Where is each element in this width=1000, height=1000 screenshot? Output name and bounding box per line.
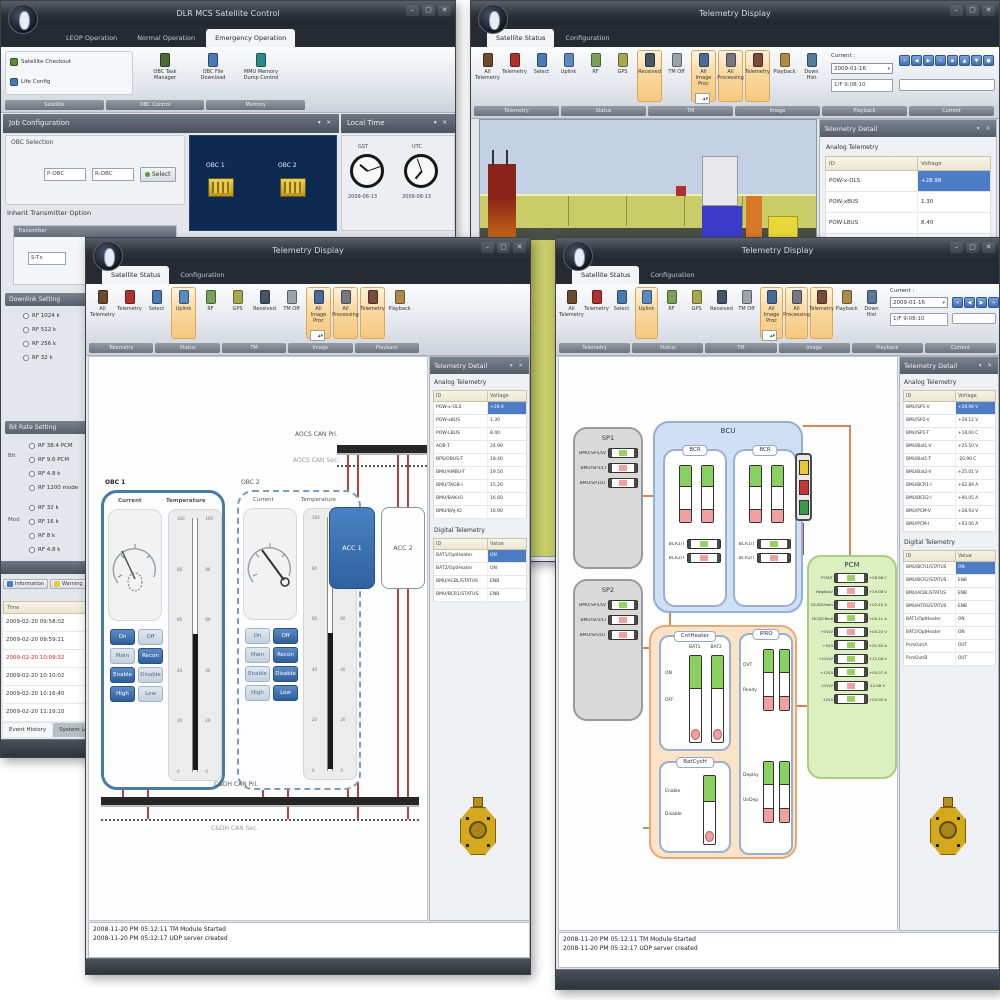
- table-row[interactable]: BMU/TAGB-I 15.20: [433, 480, 527, 493]
- battery-meter: [771, 465, 784, 523]
- log-line: 2008-11-20 PM 05:12:11 TM Module Started: [93, 925, 525, 934]
- status-bar: [86, 958, 530, 974]
- satellite-icon: [456, 795, 500, 859]
- acc2-box[interactable]: ACC 2: [381, 507, 425, 589]
- column-header-id[interactable]: ID: [904, 391, 956, 401]
- pcm-channel-indicator: PCM/T +28.98 C: [811, 573, 893, 583]
- tm-spinner[interactable]: ▴▾: [762, 330, 777, 341]
- cdh-pri-bus: [101, 797, 419, 805]
- ribbon-tab[interactable]: LEOP Operation: [57, 29, 126, 47]
- radio-option[interactable]: RF 16 k: [29, 515, 60, 529]
- titlebar[interactable]: Telemetry Display: [471, 1, 999, 25]
- tool-icon: [726, 53, 736, 67]
- log-box: 2008-11-20 PM 05:12:11 TM Module Started…: [88, 922, 530, 958]
- sp1-title: SP1: [575, 434, 641, 442]
- local-time-header[interactable]: Local Time ▾ ✕: [341, 114, 455, 133]
- scale-tick-label: 100: [312, 515, 320, 520]
- scale-tick-label: 20: [205, 718, 213, 723]
- window-controls: – ▢ ✕: [406, 5, 451, 16]
- cdh-pri-label: C&DH CAN Pri.: [214, 781, 258, 788]
- antenna-icon: [492, 150, 494, 166]
- column-header-voltage[interactable]: Voltage: [956, 391, 995, 401]
- pcm-title: PCM: [809, 561, 895, 569]
- tool-icon: [692, 290, 702, 304]
- obc-command-button[interactable]: On: [245, 628, 270, 644]
- table-row[interactable]: POW-LBUS 8.40: [433, 428, 527, 441]
- telemetry-indicator: BCR2/T: [737, 553, 795, 563]
- playback-nav-button[interactable]: ●: [983, 55, 994, 66]
- ribbon-button[interactable]: Telemetry: [810, 287, 833, 339]
- panel-header-icons[interactable]: ▾ ✕: [510, 363, 525, 369]
- panel-header-icons[interactable]: ▾ ✕: [979, 363, 994, 369]
- tool-icon: [645, 53, 655, 67]
- current-time-field[interactable]: 1/F 9:08:10: [831, 79, 893, 92]
- ribbon-button[interactable]: Playback: [387, 287, 412, 339]
- clock-gst: [350, 154, 384, 188]
- ribbon-button[interactable]: Uplink: [171, 287, 196, 339]
- table-row[interactable]: BAT2/OptHeater ON: [903, 627, 996, 640]
- ribbon-button[interactable]: RF: [583, 50, 608, 102]
- bcr2-title: BCR: [752, 445, 777, 456]
- chevron-down-icon: ▾: [942, 300, 945, 306]
- obc2-label: OBC 2: [278, 162, 297, 169]
- ribbon-side-button[interactable]: Satellite Checkout: [6, 52, 132, 72]
- ribbon-group-label: Current: [925, 343, 996, 353]
- ribbon-group-label: Status: [632, 343, 703, 353]
- ribbon-tab[interactable]: Normal Operation: [128, 29, 204, 47]
- table-row[interactable]: BMU/BCR2-I +00.05 A: [903, 493, 996, 506]
- ribbon-group-label: TM: [648, 106, 733, 116]
- ribbon-button[interactable]: Telemetry: [360, 287, 385, 339]
- ribbon-group-label: Image: [288, 343, 352, 353]
- column-header-id[interactable]: ID: [434, 391, 488, 401]
- traffic-light-icon: [795, 453, 812, 521]
- ribbon-group-label: OBC Control: [106, 100, 205, 110]
- playback-nav-button[interactable]: «: [952, 297, 963, 308]
- bcr1-box: BCR BCR1/T BCR2/T: [663, 449, 727, 607]
- ribbon-button[interactable]: Received: [637, 50, 662, 102]
- state-label: Ready: [743, 688, 757, 693]
- lander-body: [488, 164, 516, 240]
- ribbon-button[interactable]: All Telemetry: [90, 287, 115, 339]
- battery-meter: [701, 465, 714, 523]
- table-row[interactable]: POW-x-OLS +28.9: [433, 402, 527, 415]
- ribbon-button[interactable]: All Processing: [785, 287, 808, 339]
- minimize-button[interactable]: –: [481, 242, 494, 253]
- tool-icon: [483, 53, 493, 67]
- titlebar[interactable]: Telemetry Display: [556, 238, 999, 262]
- select-button[interactable]: Select: [140, 167, 176, 182]
- radio-option[interactable]: RF 32 k: [23, 351, 60, 365]
- ribbon-button[interactable]: RF: [198, 287, 223, 339]
- minimize-button[interactable]: –: [406, 5, 419, 16]
- radio-option[interactable]: RF 256 k: [23, 337, 60, 351]
- panel-collapse-icon[interactable]: ▾ ✕: [434, 114, 449, 133]
- playback-nav-button[interactable]: ▼: [971, 55, 982, 66]
- column-header-voltage[interactable]: Voltage: [918, 157, 990, 170]
- playback-nav-button[interactable]: ▶: [976, 297, 987, 308]
- close-button[interactable]: ✕: [438, 5, 451, 16]
- column-header-value[interactable]: Value: [488, 539, 526, 549]
- obc-command-button[interactable]: Off: [138, 629, 163, 645]
- ribbon-side-button[interactable]: Life Config: [6, 72, 132, 92]
- app-icon: [93, 241, 123, 271]
- ribbon-tab[interactable]: Configuration: [171, 266, 233, 284]
- scale-tick-label: 20: [312, 717, 320, 722]
- ribbon-group-label: Memory: [206, 100, 305, 110]
- ribbon-button[interactable]: GPS: [685, 287, 708, 339]
- pcm-channel-value: +29.08 V: [869, 589, 893, 594]
- column-header-id[interactable]: ID: [904, 551, 956, 561]
- batcych-title: BatCycH: [676, 757, 714, 768]
- radio-icon: [23, 355, 29, 361]
- table-row[interactable]: BMU/BAJ-IO 16.90: [433, 506, 527, 519]
- obc-command-button[interactable]: Recon: [138, 648, 163, 664]
- table-row[interactable]: BAT2/OptHeater ON: [433, 563, 527, 576]
- bus-box: [702, 206, 742, 240]
- maximize-button[interactable]: ▢: [966, 242, 979, 253]
- sp2-title: SP2: [575, 586, 641, 594]
- radio-option[interactable]: RF 4.8 k: [29, 467, 78, 481]
- table-row[interactable]: POW-xBUS 1.30: [825, 192, 991, 213]
- ribbon-button[interactable]: Received: [252, 287, 277, 339]
- telemetry-indicator: BMU/SP2/LV: [578, 600, 638, 610]
- column-header-value[interactable]: Value: [956, 551, 995, 561]
- table-row[interactable]: BMU/ACBL/STATUS ENB: [903, 588, 996, 601]
- ribbon-big-button[interactable]: OBC Task Manager: [142, 50, 188, 98]
- tool-icon: [160, 53, 170, 67]
- panel-header[interactable]: Telemetry Detail ▾ ✕: [900, 357, 998, 374]
- tool-icon: [753, 53, 763, 67]
- telemetry-indicator: BCR2/T: [667, 553, 725, 563]
- aocs-sec-bus: [337, 465, 427, 467]
- pcm-channel-indicator: DC/DCMainI +02.45 A: [811, 600, 893, 610]
- ribbon-button[interactable]: Select: [529, 50, 554, 102]
- ribbon-button[interactable]: Uplink: [635, 287, 658, 339]
- obc-command-button[interactable]: Recon: [273, 647, 298, 663]
- current-label: Current :: [831, 53, 855, 59]
- table-row[interactable]: BMU/PCM-V +28.93 V: [903, 506, 996, 519]
- mod-side-label: Mod: [8, 517, 20, 523]
- spinner-arrows-icon[interactable]: ▴▾: [770, 333, 775, 339]
- ribbon-button[interactable]: All Telemetry: [475, 50, 500, 102]
- temperature-gauge: 100806040200 100806040200: [168, 509, 222, 781]
- transmitter-legend: Inherit Transmitter Option: [7, 209, 91, 217]
- column-header-voltage[interactable]: Voltage: [488, 391, 526, 401]
- radio-option[interactable]: RF 9.6 PCM: [29, 453, 78, 467]
- ribbon-tab[interactable]: Configuration: [641, 266, 703, 284]
- bcr1-title: BCR: [682, 445, 707, 456]
- playback-nav-button[interactable]: »: [935, 55, 946, 66]
- tool-icon: [125, 290, 135, 304]
- playback-progress[interactable]: [899, 79, 995, 91]
- ribbon-tab[interactable]: Configuration: [556, 29, 618, 47]
- playback-nav-button[interactable]: ▶: [923, 55, 934, 66]
- playback-nav-button[interactable]: ▲: [959, 55, 970, 66]
- ribbon-group-label: Status: [155, 343, 219, 353]
- window-title: Telemetry Display: [272, 246, 344, 255]
- obc-command-button[interactable]: Off: [273, 628, 298, 644]
- pcm-box: PCM PCM/T +28.98 C RegBusV +29.08 V DC/D…: [807, 555, 897, 779]
- table-row[interactable]: BMU/ACBL/STATUS ENB: [433, 576, 527, 589]
- obc-command-button[interactable]: Disable: [138, 667, 163, 683]
- ribbon-big-button[interactable]: OBC File Download: [190, 50, 236, 98]
- ribbon-group-label: Image: [779, 343, 850, 353]
- radio-icon: [29, 471, 35, 477]
- ribbon-button[interactable]: All Processing: [333, 287, 358, 339]
- maximize-button[interactable]: ▢: [966, 5, 979, 16]
- radio-icon: [29, 485, 35, 491]
- scale-tick-label: 40: [340, 667, 348, 672]
- ribbon-button[interactable]: TM Off: [664, 50, 689, 102]
- ribbon-button[interactable]: Uplink: [556, 50, 581, 102]
- obc-command-button[interactable]: Main: [245, 647, 270, 663]
- clock1-caption: GST: [358, 144, 368, 150]
- window-title: Telemetry Display: [742, 246, 814, 255]
- panel-header-icons[interactable]: ▾ ✕: [977, 126, 992, 132]
- minimize-button[interactable]: –: [950, 5, 963, 16]
- ribbon-group-label: Playback: [822, 106, 907, 116]
- scale-tick-label: 40: [177, 668, 185, 673]
- maximize-button[interactable]: ▢: [497, 242, 510, 253]
- spinner-arrows-icon[interactable]: ▴▾: [703, 96, 708, 102]
- ribbon-group-label: Current: [909, 106, 994, 116]
- playback-nav-button[interactable]: «: [899, 55, 910, 66]
- obc-command-button[interactable]: Disable: [273, 666, 298, 682]
- log-line: 2008-11-20 PM 05:12:11 TM Module Started: [563, 935, 994, 944]
- window-controls: – ▢ ✕: [950, 242, 995, 253]
- ribbon-button[interactable]: TM Off: [279, 287, 304, 339]
- table-row[interactable]: POW-x-OLS +28.98: [825, 171, 991, 192]
- obc2-field[interactable]: R-OBC: [92, 168, 134, 181]
- analog-telemetry-title: Analog Telemetry: [826, 144, 878, 151]
- ribbon-group-label: TM: [222, 343, 286, 353]
- radio-icon: [23, 327, 29, 333]
- radio-icon: [29, 505, 35, 511]
- app-icon: [478, 4, 508, 34]
- table-row[interactable]: BMU/Bat1-V +25.50 V: [903, 441, 996, 454]
- pane-tab[interactable]: Event History: [3, 723, 52, 737]
- table-row[interactable]: BMU/HTRS/STATUS ENB: [903, 601, 996, 614]
- job-config-header[interactable]: Job Configuration ▾ ✕: [3, 114, 339, 133]
- pcm-channel-indicator: -12V/I +00.05 A: [811, 694, 893, 704]
- ribbon-button[interactable]: GPS: [610, 50, 635, 102]
- column-header-id[interactable]: ID: [826, 157, 918, 170]
- tm-spinner[interactable]: ▴▾: [310, 330, 325, 341]
- current-label: Current: [118, 498, 142, 504]
- ribbon-button[interactable]: Telemetry: [117, 287, 142, 339]
- current-gauge: [243, 508, 297, 620]
- cntheater-title: CntHeater: [674, 631, 716, 642]
- playback-nav-button[interactable]: ▪: [947, 55, 958, 66]
- ribbon-button[interactable]: Telemetry: [585, 287, 608, 339]
- ribbon-tab[interactable]: Emergency Operation: [206, 29, 295, 47]
- telemetry-indicator: BMU/SP2/LI: [578, 615, 638, 625]
- playback-nav-button[interactable]: »: [988, 297, 999, 308]
- obc-command-button[interactable]: Main: [110, 648, 135, 664]
- obc-command-button[interactable]: On: [110, 629, 135, 645]
- radio-option[interactable]: RF 1024 k: [23, 309, 60, 323]
- bcu-box: BCU BCR BCR1/T BCR2/T BC: [653, 421, 803, 613]
- panel-collapse-icon[interactable]: ▾ ✕: [318, 114, 333, 133]
- obc-command-button[interactable]: High: [110, 686, 135, 702]
- panel-header[interactable]: Telemetry Detail ▾ ✕: [820, 120, 996, 137]
- playback-nav-button[interactable]: ◀: [964, 297, 975, 308]
- ribbon-button[interactable]: Received: [710, 287, 733, 339]
- pcm-channel-indicator: DC/DCRedI +05.11 A: [811, 613, 893, 623]
- scale-tick-label: 100: [205, 516, 213, 521]
- radio-option[interactable]: RF 8 k: [29, 529, 60, 543]
- table-row[interactable]: BMU/AMBU-T 19.50: [433, 467, 527, 480]
- obc2-title: OBC 2: [241, 479, 260, 486]
- obc-command-button[interactable]: Low: [273, 685, 298, 701]
- ribbon-button[interactable]: All Processing: [718, 50, 743, 102]
- ribbon-button[interactable]: Playback: [835, 287, 858, 339]
- table-row[interactable]: PcmOut/B OUT: [903, 653, 996, 666]
- table-row[interactable]: BMU/SP1-V +28.98 V: [903, 402, 996, 415]
- obc2-chip-icon[interactable]: [280, 178, 306, 197]
- table-row[interactable]: BMU/BCR1/STATUS ENB: [433, 589, 527, 602]
- radio-option[interactable]: RF 4.8 k: [29, 543, 60, 557]
- ribbon: Satellite Checkout Life Config OBC Task …: [1, 47, 455, 113]
- table-row[interactable]: POW-xBUS 1.30: [433, 415, 527, 428]
- tool-icon: [260, 290, 270, 304]
- time-column-header[interactable]: Time: [4, 602, 19, 613]
- radio-icon: [23, 313, 29, 319]
- deploy-meter: [779, 761, 790, 823]
- current-date-combo[interactable]: 2009-01-16▾: [890, 297, 948, 308]
- playback-nav-button[interactable]: ◀: [911, 55, 922, 66]
- radio-option[interactable]: RF 38.4 PCM: [29, 439, 78, 453]
- table-row[interactable]: BPS/OBUS-T 18.40: [433, 454, 527, 467]
- obc1-field[interactable]: P-OBC: [44, 168, 86, 181]
- spinner-arrows-icon[interactable]: ▴▾: [318, 333, 323, 339]
- ribbon-button[interactable]: Select: [144, 287, 169, 339]
- pcm-channel-value: +28.98 C: [869, 575, 893, 580]
- clock2-caption: UTC: [412, 144, 422, 150]
- column-header-id[interactable]: ID: [434, 539, 488, 549]
- obc-command-button[interactable]: Enable: [245, 666, 270, 682]
- event-filter-button[interactable]: Warning: [50, 579, 87, 589]
- ribbon-button[interactable]: GPS: [225, 287, 250, 339]
- titlebar[interactable]: Telemetry Display: [86, 238, 530, 262]
- current-time-field[interactable]: 1/F 9:08:10: [890, 313, 948, 326]
- pcm-channel-value: +01.50 A: [869, 643, 893, 648]
- analog-telemetry-title: Analog Telemetry: [434, 379, 486, 386]
- scale-tick-label: 0: [177, 769, 185, 774]
- panel-header[interactable]: Telemetry Detail ▾ ✕: [430, 357, 529, 374]
- ribbon-tabs: Satellite Status Configuration: [556, 262, 999, 284]
- ribbon-button[interactable]: Down Hist: [799, 50, 824, 102]
- window-telemetry-eps[interactable]: Telemetry Display – ▢ ✕ Satellite Status…: [555, 237, 1000, 990]
- ribbon-button[interactable]: Down Hist: [860, 287, 883, 339]
- telemetry-indicator: BCR1/T: [667, 539, 725, 549]
- obc-command-button[interactable]: Enable: [110, 667, 135, 683]
- close-button[interactable]: ✕: [982, 242, 995, 253]
- pcm-channel-indicator: +12V/V +12.08 V: [811, 654, 893, 664]
- ribbon: All Telemetry Telemetry Select Uplink RF: [86, 284, 530, 356]
- acc1-box[interactable]: ACC 1: [329, 507, 375, 589]
- cdh-sec-bus: [101, 819, 419, 821]
- table-row[interactable]: POW-LBUS 8.40: [825, 213, 991, 234]
- table-row[interactable]: BMU/BCR1-I +02.89 A: [903, 480, 996, 493]
- current-date-combo[interactable]: 2009-01-16▾: [831, 63, 893, 74]
- ribbon-group-label: Playback: [355, 343, 419, 353]
- ribbon-button[interactable]: Playback: [772, 50, 797, 102]
- pcm-channel-value: +05.11 A: [869, 616, 893, 621]
- state-label: ON: [665, 671, 674, 676]
- titlebar[interactable]: DLR MCS Satellite Control: [1, 1, 455, 25]
- ribbon-group-label: TM: [705, 343, 776, 353]
- playback-progress[interactable]: [952, 313, 996, 324]
- table-row[interactable]: BMU/Bat1-T -20.90 C: [903, 454, 996, 467]
- tm-spinner[interactable]: ▴▾: [695, 93, 710, 104]
- table-row[interactable]: BMU/BCR2/STATUS ENB: [903, 575, 996, 588]
- table-row[interactable]: BAT1/OptHeater ON: [903, 614, 996, 627]
- obc1-chip-icon[interactable]: [208, 178, 234, 197]
- tool-icon: [699, 53, 709, 67]
- telemetry-detail-panel: Telemetry Detail ▾ ✕ Analog Telemetry ID…: [429, 356, 530, 921]
- obc1-label: OBC 1: [206, 162, 225, 169]
- sp2-box: SP2 BMU/SP2/LV BMU/SP2/LI BMU/SP2/LT: [573, 579, 643, 721]
- heater-meter: [703, 775, 716, 845]
- event-filter-button[interactable]: Information: [3, 579, 48, 589]
- ribbon-big-button[interactable]: MMU Memory Dump Control: [238, 50, 284, 98]
- table-row[interactable]: BMU/PCM-I +03.00 A: [903, 519, 996, 532]
- ribbon-button[interactable]: Telemetry: [745, 50, 770, 102]
- table-row[interactable]: BMU/SP2-V +28.12 V: [903, 415, 996, 428]
- table-row[interactable]: BAT1/OptHeater ON: [433, 550, 527, 563]
- battery-meter: [679, 465, 692, 523]
- scale-tick-label: 20: [177, 718, 185, 723]
- radio-option[interactable]: RF 1200 mode: [29, 481, 78, 495]
- table-row[interactable]: BMU/BAK-IO 16.60: [433, 493, 527, 506]
- minimize-button[interactable]: –: [950, 242, 963, 253]
- ribbon-group-label: Telemetry: [474, 106, 559, 116]
- scale-tick-label: 40: [205, 668, 213, 673]
- radio-option[interactable]: RF 512 k: [23, 323, 60, 337]
- tool-icon: [314, 290, 324, 304]
- deploy-meter: [779, 649, 790, 711]
- close-button[interactable]: ✕: [982, 5, 995, 16]
- ribbon-button[interactable]: Select: [610, 287, 633, 339]
- table-row[interactable]: AOB-T 24.90: [433, 441, 527, 454]
- ribbon-button[interactable]: TM Off: [735, 287, 758, 339]
- select-icon: [145, 172, 150, 177]
- log-box: 2008-11-20 PM 05:12:11 TM Module Started…: [558, 932, 999, 968]
- desktop: DLR MCS Satellite Control – ▢ ✕ LEOP Ope…: [0, 0, 1000, 1000]
- batcych-box: BatCycH EnableDisable: [659, 761, 731, 853]
- ribbon-button[interactable]: Telemetry: [502, 50, 527, 102]
- radio-option[interactable]: RF 32 k: [29, 501, 60, 515]
- table-row[interactable]: BMU/BCR1/STATUS ON: [903, 562, 996, 575]
- tool-icon: [206, 290, 216, 304]
- table-row[interactable]: BMU/Bat2-V +25.01 V: [903, 467, 996, 480]
- scale-tick-label: 0: [340, 768, 348, 773]
- table-row[interactable]: PcmOut/A OUT: [903, 640, 996, 653]
- table-row[interactable]: BMU/SP1-T +18.00 C: [903, 428, 996, 441]
- maximize-button[interactable]: ▢: [422, 5, 435, 16]
- obc-command-button[interactable]: Low: [138, 686, 163, 702]
- scale-tick-label: 60: [340, 616, 348, 621]
- ribbon-button[interactable]: All Telemetry: [560, 287, 583, 339]
- close-button[interactable]: ✕: [513, 242, 526, 253]
- obc-command-button[interactable]: High: [245, 685, 270, 701]
- window-telemetry-obc[interactable]: Telemetry Display – ▢ ✕ Satellite Status…: [85, 237, 531, 975]
- sp1-box: SP1 BMU/SP1/LV BMU/SP1/LI BMU/SP1/LT: [573, 427, 643, 569]
- ribbon-button[interactable]: RF: [660, 287, 683, 339]
- transmitter-field[interactable]: S-Tx: [28, 252, 66, 265]
